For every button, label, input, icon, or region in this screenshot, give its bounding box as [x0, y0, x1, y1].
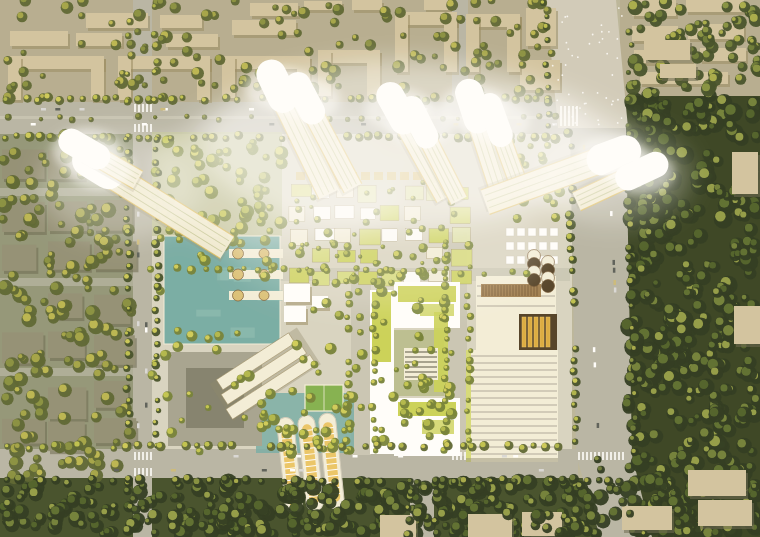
aerial-render-viewport: Top-down aerial rendering of an urban re… [0, 0, 760, 537]
warm-tint [0, 0, 760, 537]
sunlight-glow-overlay [0, 0, 760, 537]
masterplan-aerial-render [0, 0, 760, 537]
